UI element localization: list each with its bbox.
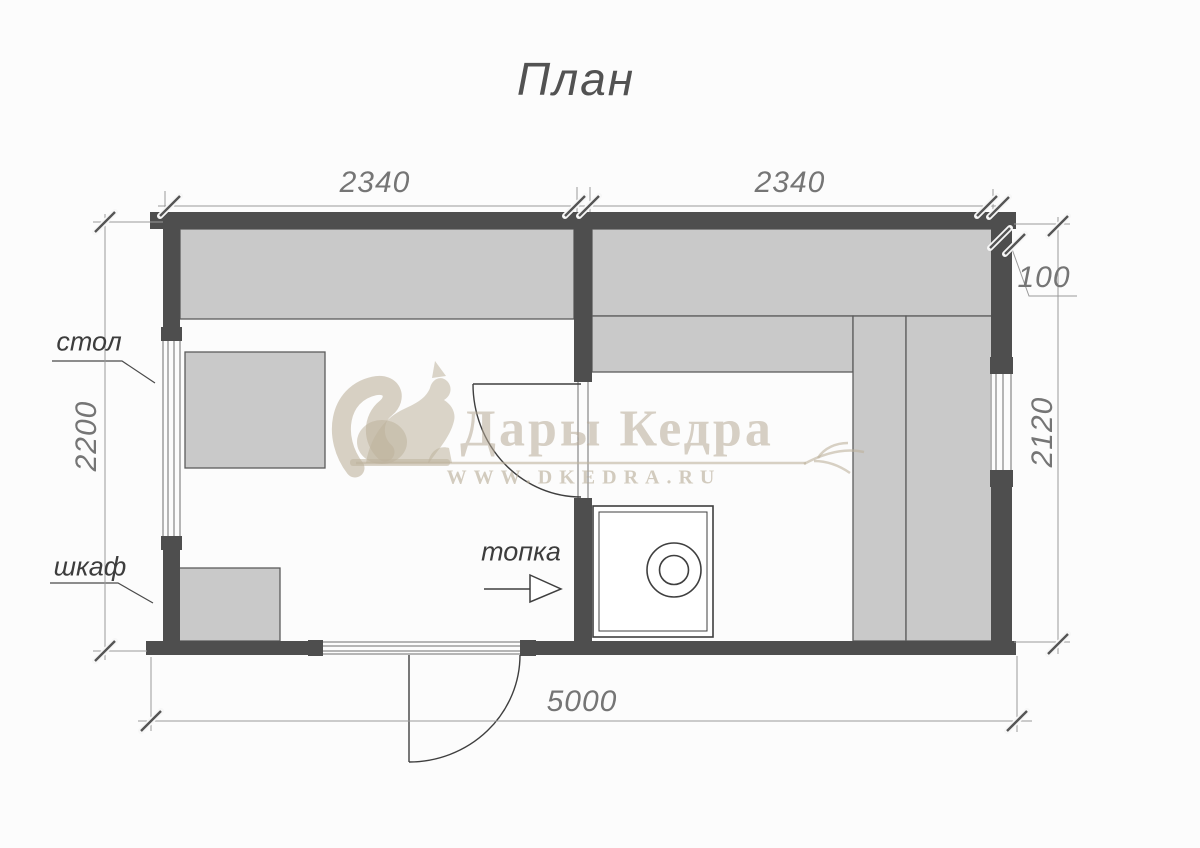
watermark-url-text: WWW.DKEDRA.RU	[447, 467, 722, 490]
window-left	[161, 327, 182, 550]
dim-right-depth: 2120	[1026, 397, 1060, 468]
left-room-top-bench	[180, 229, 574, 319]
page-title: План	[517, 52, 635, 106]
firebox-arrow-icon	[484, 575, 561, 602]
wall-bottom	[146, 641, 1016, 655]
stove-chimney-inner-circle	[660, 556, 689, 585]
sauna-side-bench-outer	[906, 316, 993, 641]
dim-left-depth: 2200	[70, 401, 104, 472]
cabinet-leader-line	[50, 583, 153, 603]
entrance-door-swing-arc	[409, 655, 520, 762]
sauna-shelf-tier2	[592, 316, 853, 372]
table	[185, 352, 325, 468]
cabinet	[173, 568, 280, 641]
squirrel-haunch	[357, 420, 407, 464]
dim-wall-thickness: 100	[1017, 261, 1070, 295]
dim-total-length: 5000	[547, 685, 618, 719]
window-right	[990, 357, 1013, 487]
squirrel-ear	[432, 361, 446, 378]
table-leader-line	[52, 361, 155, 383]
floor-plan-canvas: План 2340 2340 100 2200 2120 5000 стол ш…	[0, 0, 1200, 848]
stove	[593, 506, 713, 637]
entrance-door	[308, 640, 536, 762]
sauna-side-bench-inner	[853, 316, 906, 641]
label-table: стол	[56, 327, 121, 358]
label-firebox: топка	[481, 537, 561, 568]
dim-left-room-width: 2340	[340, 166, 411, 200]
watermark-brand-text: Дары Кедра	[460, 400, 774, 459]
squirrel-logo-icon	[341, 361, 454, 468]
sauna-shelf-tier1	[592, 229, 993, 316]
dim-right-room-width: 2340	[755, 166, 826, 200]
label-cabinet: шкаф	[54, 552, 127, 583]
